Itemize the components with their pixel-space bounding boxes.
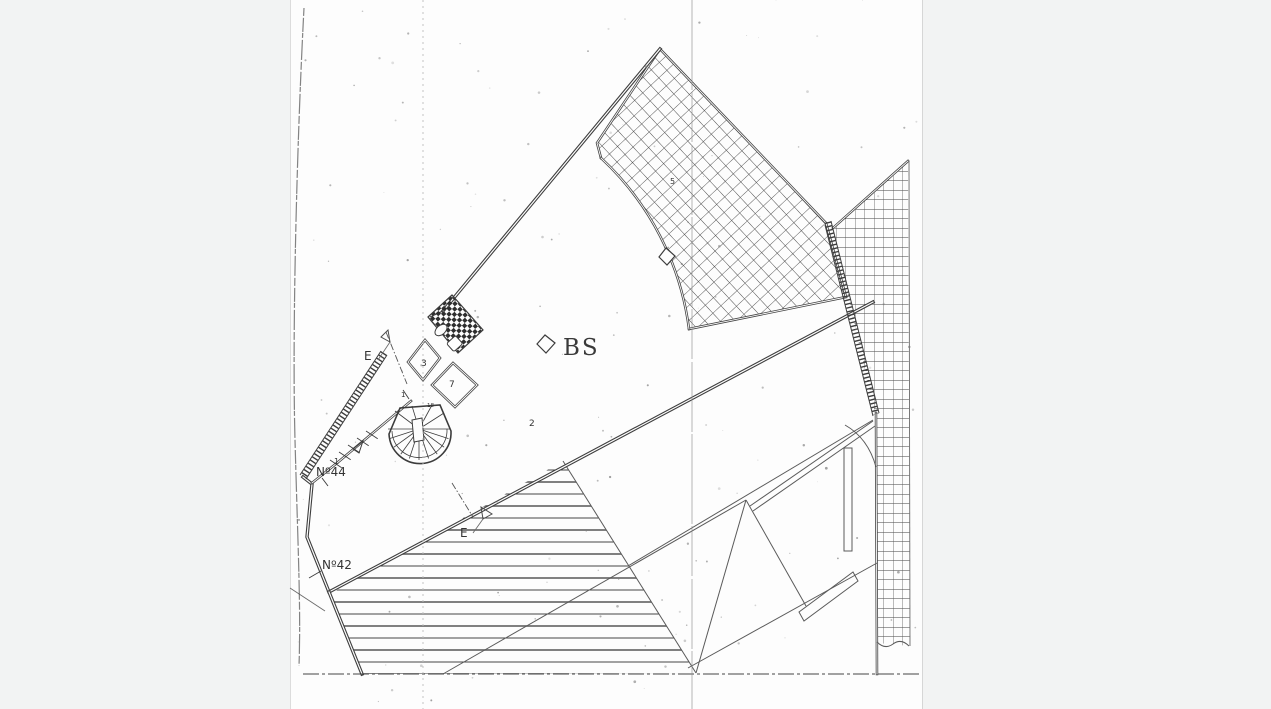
stair-step-number: 18 [427, 403, 434, 409]
label-bs: BS [563, 335, 600, 361]
section-letter: E [460, 526, 468, 540]
label-house-42: Nº42 [322, 558, 352, 572]
floor-plan-drawing: E E BS Nº44 1 Nº42 3 7 2 5 18 1 [0, 0, 1271, 709]
document-viewer: E E BS Nº44 1 Nº42 3 7 2 5 18 1 [0, 0, 1271, 709]
label-house-44: Nº44 [316, 465, 346, 479]
section-letter: E [364, 349, 372, 363]
stair-newel [412, 418, 424, 442]
area-5-label: 5 [670, 177, 675, 186]
room-7-label: 7 [449, 380, 455, 390]
corridor-mark-label: 1 [401, 391, 405, 399]
area-2-label: 2 [529, 419, 535, 429]
label-house-44-sup: 1 [334, 457, 339, 466]
room-3-label: 3 [421, 359, 427, 369]
